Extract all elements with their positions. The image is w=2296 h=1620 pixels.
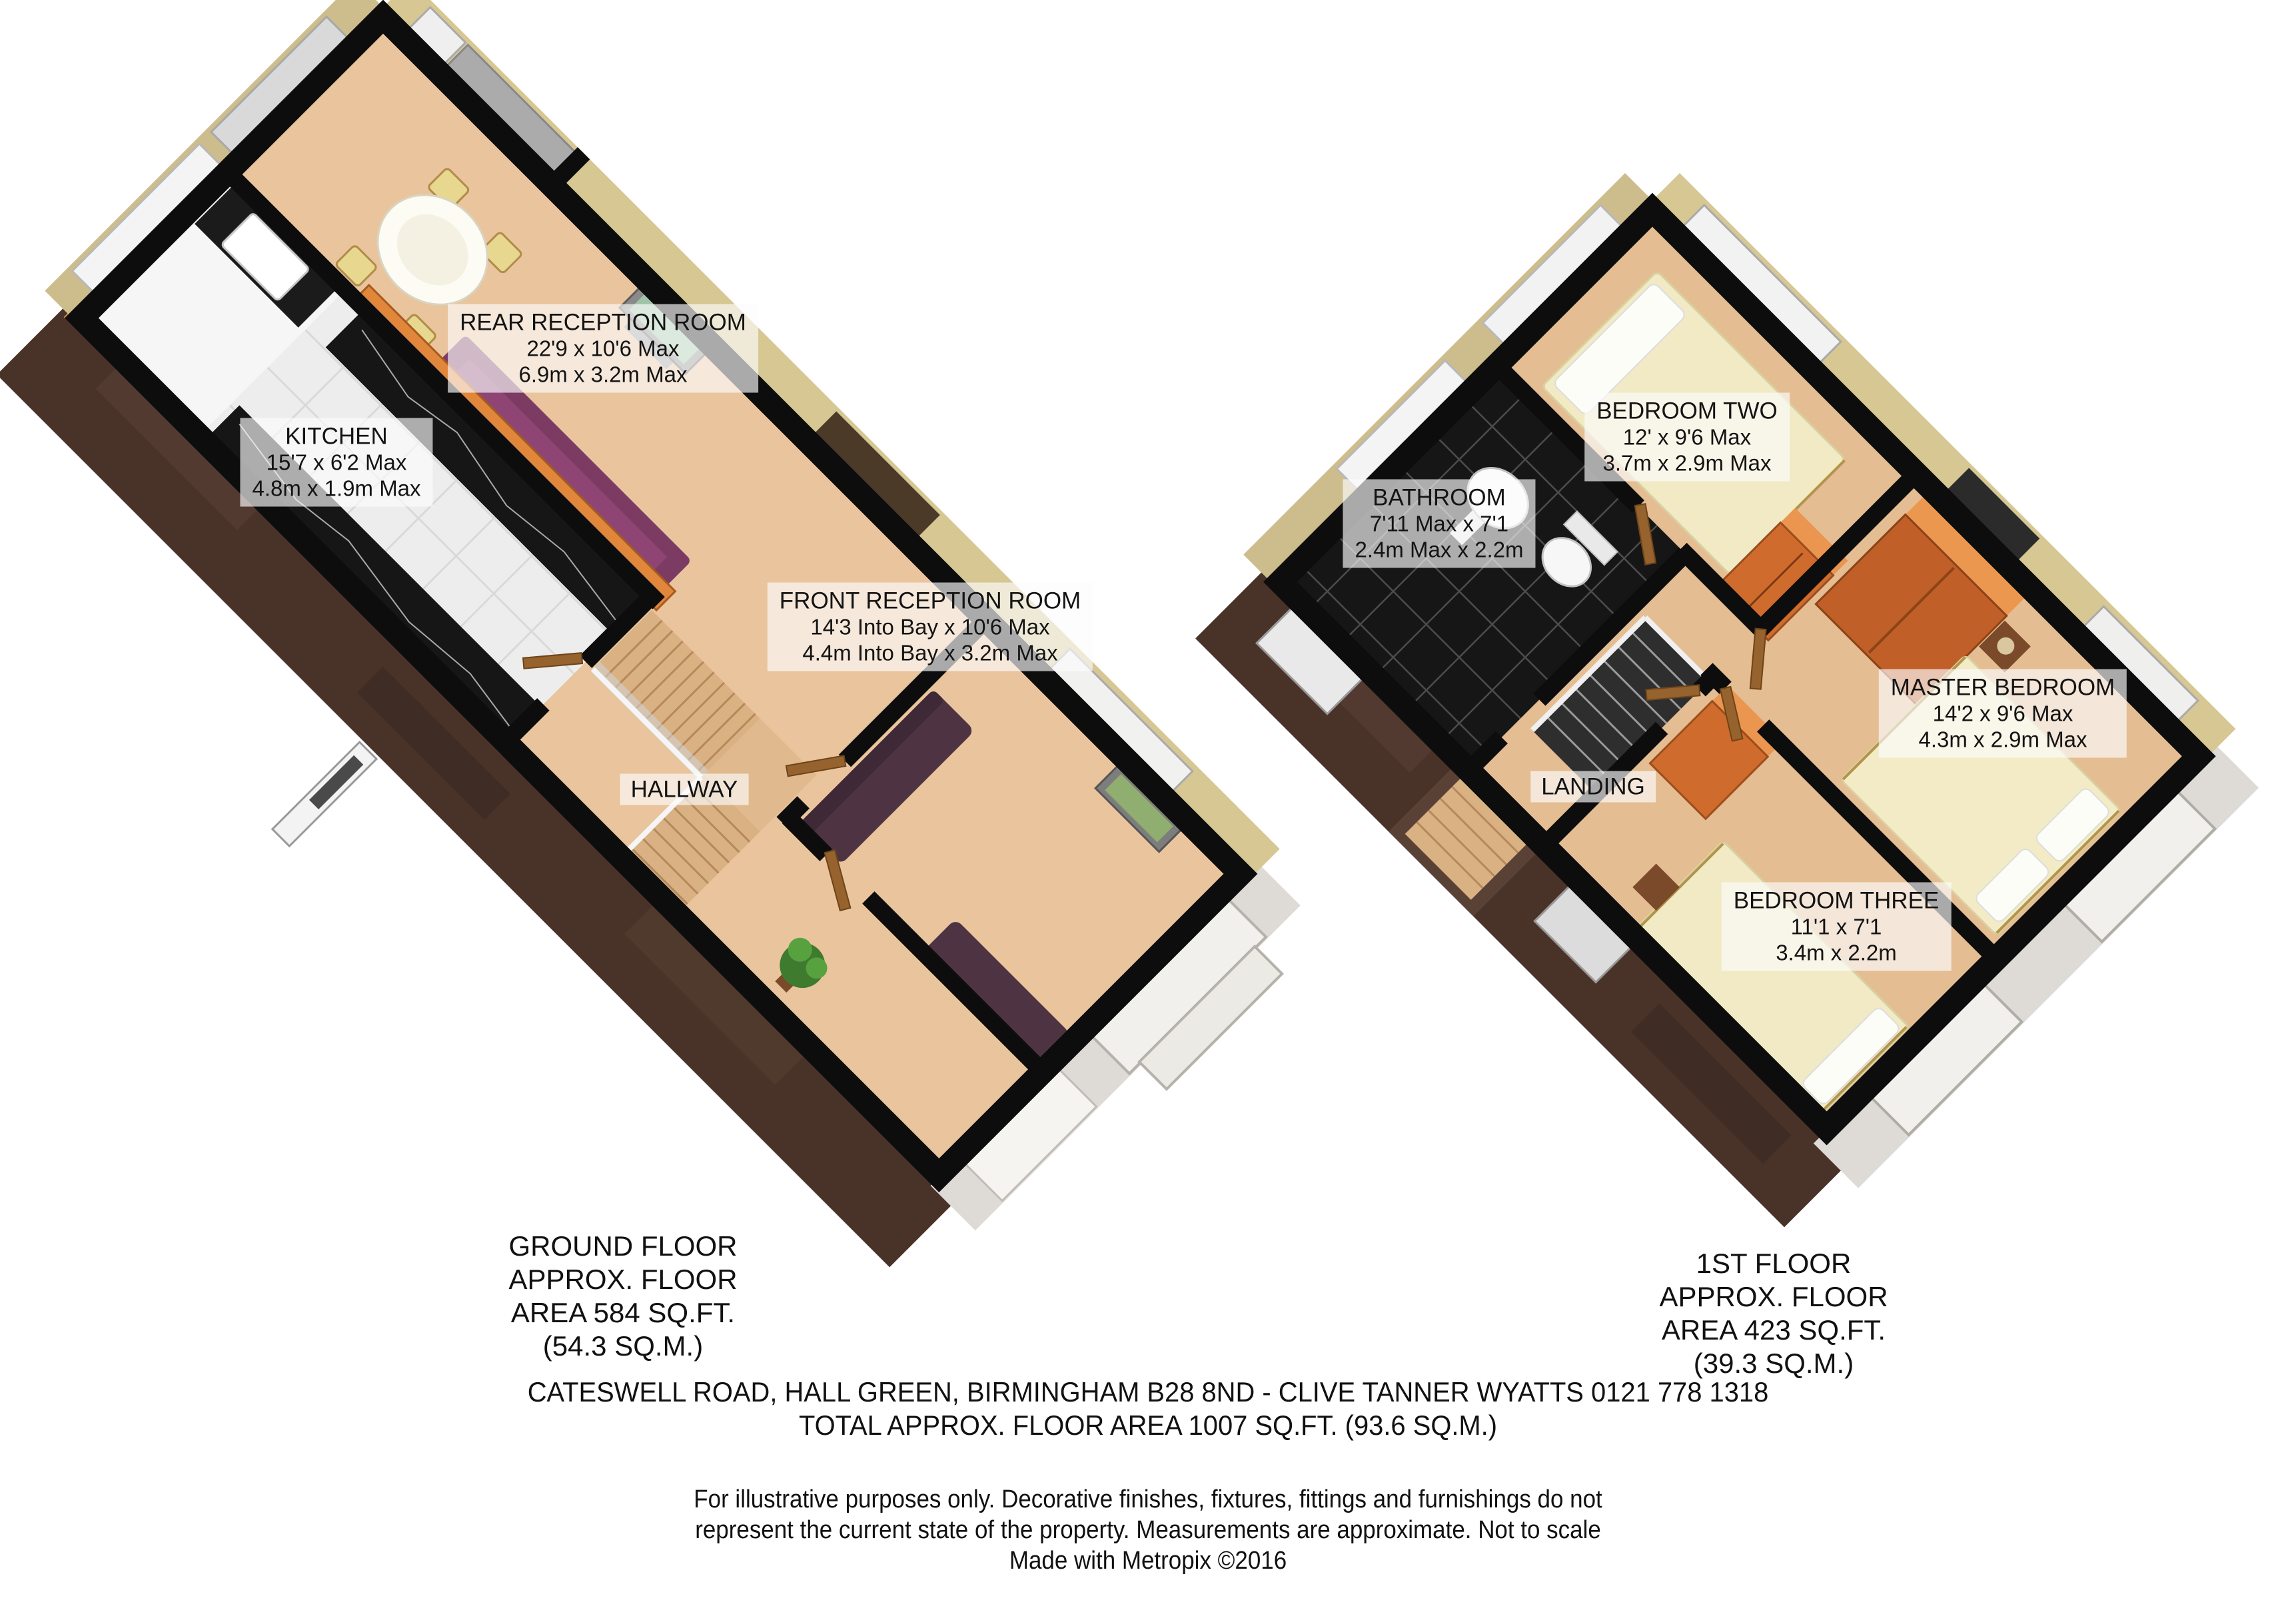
disclaimer-line1: For illustrative purposes only. Decorati… <box>694 1485 1602 1514</box>
room-size-metric: 3.7m x 2.9m Max <box>1602 451 1771 476</box>
room-size-imperial: 14'2 x 9'6 Max <box>1933 701 2073 726</box>
ground-floor-plan <box>0 0 1343 1406</box>
room-size-imperial: 22'9 x 10'6 Max <box>526 336 679 361</box>
floorplan-page: REAR RECEPTION ROOM 22'9 x 10'6 Max 6.9m… <box>0 0 2296 1620</box>
room-name: FRONT RECEPTION ROOM <box>780 588 1081 614</box>
room-size-imperial: 14'3 Into Bay x 10'6 Max <box>810 615 1049 639</box>
room-size-metric: 4.4m Into Bay x 3.2m Max <box>802 641 1057 665</box>
room-size-imperial: 7'11 Max x 7'1 <box>1370 512 1508 536</box>
room-name: REAR RECEPTION ROOM <box>460 310 746 336</box>
ground-title-line1: GROUND FLOOR <box>508 1230 737 1263</box>
label-rear-reception-room: REAR RECEPTION ROOM 22'9 x 10'6 Max 6.9m… <box>448 304 758 393</box>
room-name: HALLWAY <box>631 777 738 803</box>
label-kitchen: KITCHEN 15'7 x 6'2 Max 4.8m x 1.9m Max <box>240 418 432 507</box>
room-size-metric: 3.4m x 2.2m <box>1776 941 1897 965</box>
first-title-line4: (39.3 SQ.M.) <box>1659 1347 1888 1380</box>
first-title-line2: APPROX. FLOOR <box>1659 1280 1888 1314</box>
ground-title-line2: APPROX. FLOOR <box>508 1263 737 1296</box>
label-bathroom: BATHROOM 7'11 Max x 7'1 2.4m Max x 2.2m <box>1343 480 1535 568</box>
ground-title-line4: (54.3 SQ.M.) <box>508 1330 737 1363</box>
room-name: LANDING <box>1541 774 1645 800</box>
room-size-metric: 2.4m Max x 2.2m <box>1355 538 1523 562</box>
label-landing: LANDING <box>1530 771 1656 803</box>
label-bedroom-two: BEDROOM TWO 12' x 9'6 Max 3.7m x 2.9m Ma… <box>1584 393 1790 482</box>
label-master-bedroom: MASTER BEDROOM 14'2 x 9'6 Max 4.3m x 2.9… <box>1879 669 2127 758</box>
room-size-imperial: 15'7 x 6'2 Max <box>267 450 407 475</box>
total-area-line: TOTAL APPROX. FLOOR AREA 1007 SQ.FT. (93… <box>799 1410 1497 1441</box>
ground-title-line3: AREA 584 SQ.FT. <box>508 1296 737 1330</box>
room-size-metric: 4.3m x 2.9m Max <box>1918 727 2087 752</box>
label-hallway: HALLWAY <box>620 774 749 805</box>
disclaimer-line2: represent the current state of the prope… <box>695 1516 1601 1545</box>
room-name: KITCHEN <box>252 424 420 450</box>
room-name: BATHROOM <box>1355 485 1523 511</box>
label-bedroom-three: BEDROOM THREE 11'1 x 7'1 3.4m x 2.2m <box>1722 883 1952 971</box>
room-size-metric: 6.9m x 3.2m Max <box>518 362 687 387</box>
room-name: MASTER BEDROOM <box>1891 675 2115 701</box>
room-size-imperial: 11'1 x 7'1 <box>1791 915 1882 939</box>
first-floor-title: 1ST FLOOR APPROX. FLOOR AREA 423 SQ.FT. … <box>1659 1247 1888 1380</box>
room-name: BEDROOM THREE <box>1734 888 1940 914</box>
front-door <box>273 742 376 846</box>
label-front-reception-room: FRONT RECEPTION ROOM 14'3 Into Bay x 10'… <box>768 583 1093 671</box>
room-name: BEDROOM TWO <box>1596 398 1778 424</box>
address-line: CATESWELL ROAD, HALL GREEN, BIRMINGHAM B… <box>528 1376 1769 1408</box>
disclaimer-line3: Made with Metropix ©2016 <box>1009 1547 1287 1575</box>
ground-floor-title: GROUND FLOOR APPROX. FLOOR AREA 584 SQ.F… <box>508 1230 737 1363</box>
first-title-line1: 1ST FLOOR <box>1659 1247 1888 1280</box>
room-size-imperial: 12' x 9'6 Max <box>1623 425 1751 450</box>
first-title-line3: AREA 423 SQ.FT. <box>1659 1314 1888 1347</box>
room-size-metric: 4.8m x 1.9m Max <box>252 476 420 501</box>
